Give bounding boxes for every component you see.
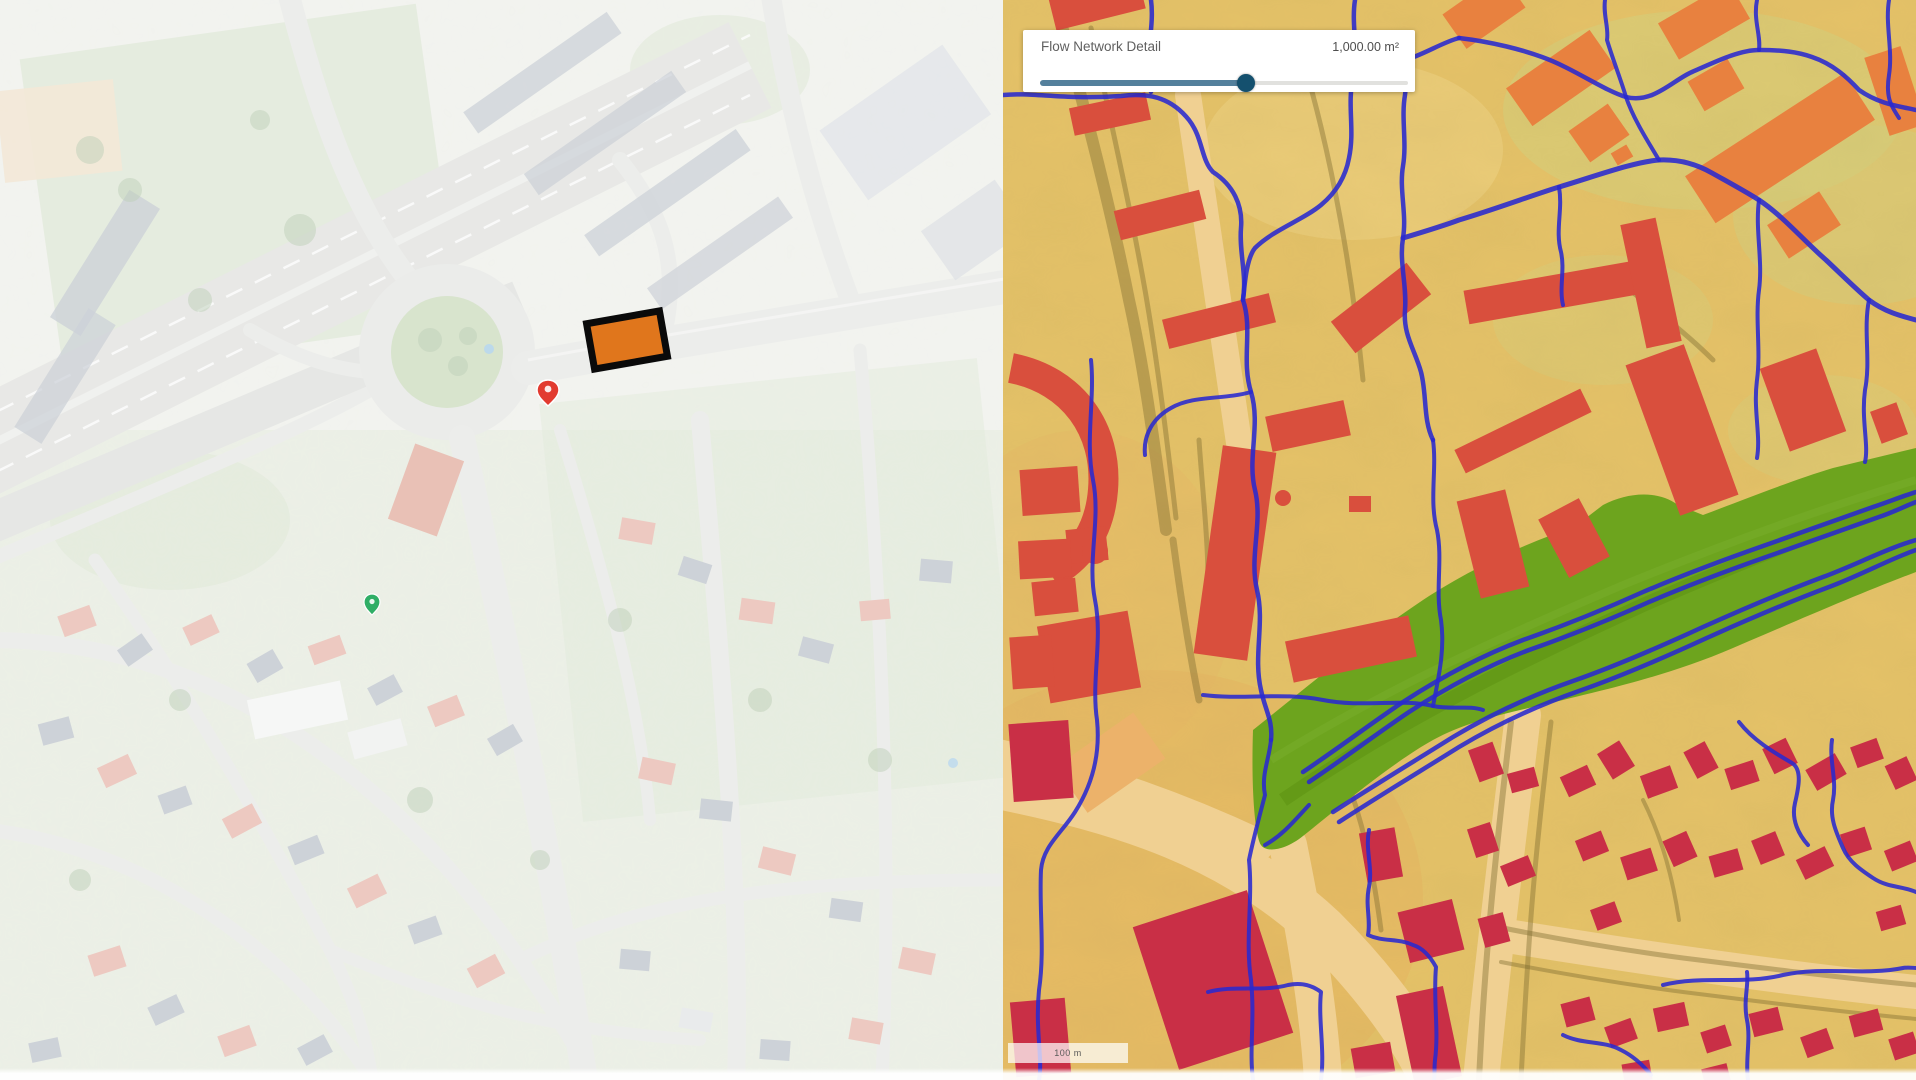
detail-slider[interactable] <box>1040 74 1408 92</box>
bottom-edge-fade <box>0 1068 1916 1080</box>
highlight-rectangle <box>587 311 668 369</box>
aerial-map[interactable] <box>0 0 1003 1080</box>
flow-network-detail-panel: Flow Network Detail 1,000.00 m² <box>1023 30 1415 92</box>
panel-title: Flow Network Detail <box>1041 39 1161 54</box>
terrain-flow-map[interactable] <box>1003 0 1916 1080</box>
scale-bar: 100 m <box>1008 1043 1128 1063</box>
scale-bar-label: 100 m <box>1054 1048 1082 1058</box>
slider-fill <box>1040 80 1246 86</box>
fade-overlay <box>0 0 1003 1080</box>
split-map-view: Flow Network Detail 1,000.00 m² 100 m <box>0 0 1916 1080</box>
panel-value: 1,000.00 m² <box>1332 40 1399 54</box>
slider-thumb[interactable] <box>1237 74 1255 92</box>
